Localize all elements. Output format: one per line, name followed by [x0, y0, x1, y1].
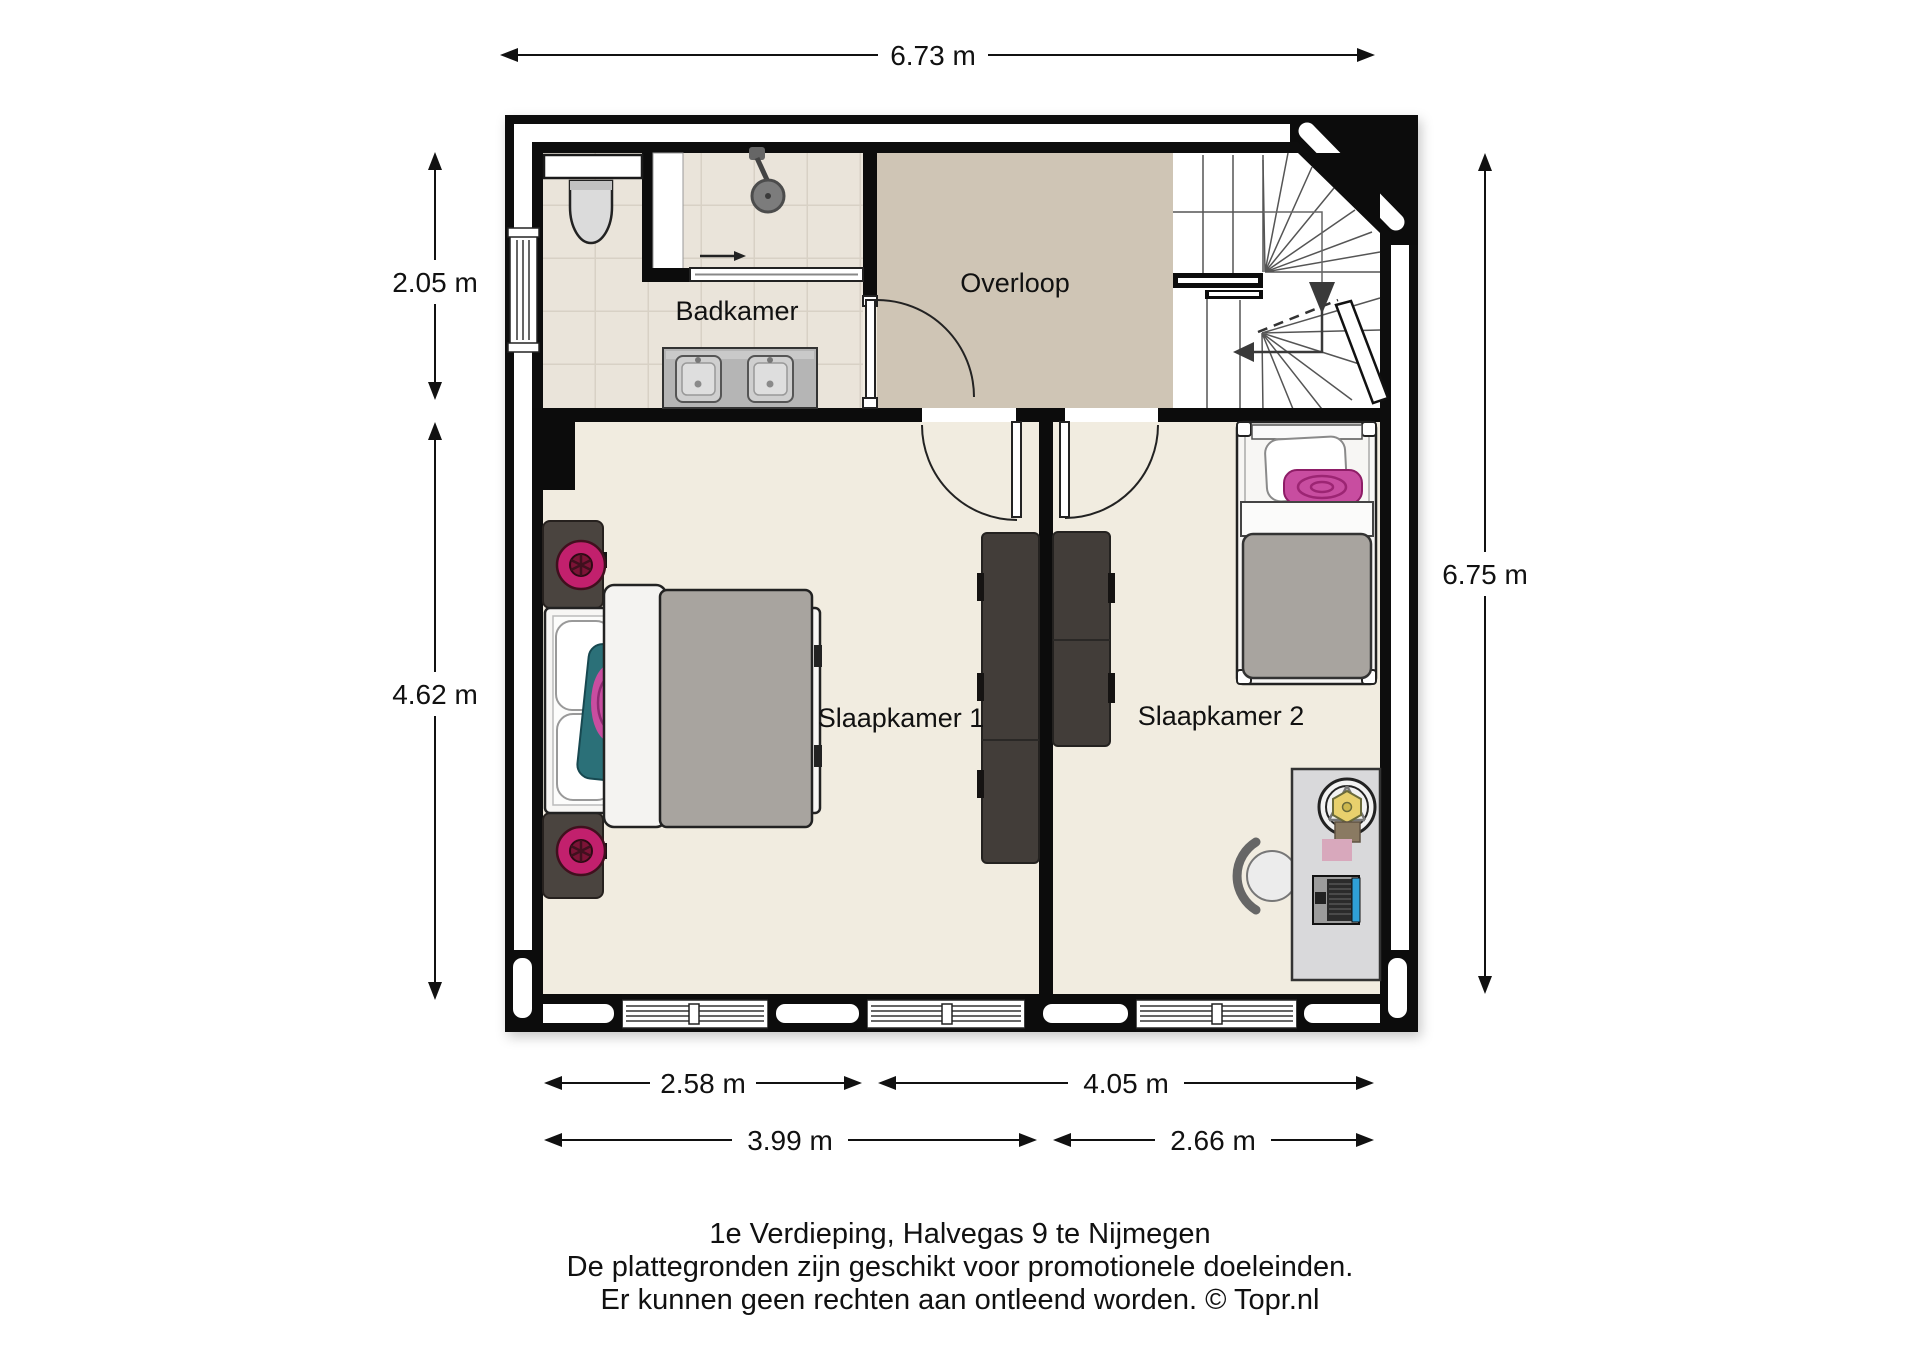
dim-right-label: 6.75 m — [1442, 559, 1528, 590]
table-lamp-bottom-icon — [557, 827, 605, 875]
dim-landing-width-label: 4.05 m — [1083, 1068, 1169, 1099]
caption-block: 1e Verdieping, Halvegas 9 te Nijmegen De… — [567, 1218, 1354, 1316]
dim-bottom-row1-right: 4.05 m — [878, 1068, 1374, 1099]
bedroom1-corner-pier — [532, 408, 575, 490]
toilet-icon — [570, 181, 612, 243]
window-bedroom2-south — [1136, 1000, 1307, 1028]
window-bathroom-west — [508, 228, 539, 352]
toilet-cistern — [544, 155, 642, 178]
dim-left-lower-label: 4.62 m — [392, 679, 478, 710]
toilet-partition-wall — [642, 153, 653, 270]
caption-line-3: Er kunnen geen rechten aan ontleend word… — [601, 1284, 1320, 1316]
single-bed — [1237, 422, 1376, 684]
dim-left-lower: 4.62 m — [392, 422, 478, 1000]
wardrobe2-handle-2 — [1108, 673, 1115, 703]
vanity-double-sink — [663, 348, 817, 408]
single-bed-rose-pillow — [1284, 470, 1362, 504]
landing-label: Overloop — [960, 268, 1070, 298]
bedroom2-label: Slaapkamer 2 — [1138, 701, 1305, 731]
dim-bathroom-width-label: 2.58 m — [660, 1068, 746, 1099]
single-bed-headboard — [1252, 425, 1362, 439]
bed-foot-fitting-1 — [814, 645, 822, 667]
bedroom1-label: Slaapkamer 1 — [818, 703, 985, 733]
bed-foot-fitting-2 — [814, 745, 822, 767]
shower-entry-gap — [653, 153, 683, 270]
table-lamp-top-icon — [557, 541, 605, 589]
bathroom-label: Badkamer — [675, 296, 798, 326]
double-bed — [545, 585, 822, 827]
dim-right: 6.75 m — [1442, 153, 1528, 994]
gray-duvet — [660, 590, 812, 827]
dim-bottom-row2-left: 3.99 m — [544, 1125, 1037, 1156]
dim-left-upper-label: 2.05 m — [392, 267, 478, 298]
single-bed-blanket — [1243, 534, 1371, 678]
laptop-icon — [1313, 876, 1360, 924]
stair-stub-wall-1-core — [1178, 278, 1258, 283]
door-gap-bedroom1 — [922, 408, 1016, 422]
window-bedroom1-south-a — [612, 1000, 768, 1028]
notepad — [1322, 839, 1352, 861]
dim-top: 6.73 m — [500, 40, 1375, 71]
window-bedroom1-south-b — [867, 1000, 1035, 1028]
wardrobe1-handle-3 — [977, 770, 984, 798]
door-gap-bedroom2 — [1065, 408, 1158, 422]
dim-left-upper: 2.05 m — [392, 152, 478, 400]
bathroom-south-wall — [532, 408, 877, 422]
bedroom-divider-wall — [1039, 408, 1053, 994]
single-bed-sheet-fold — [1241, 502, 1373, 536]
dim-bottom-row2-right: 2.66 m — [1053, 1125, 1374, 1156]
caption-line-2: De plattegronden zijn geschikt voor prom… — [567, 1251, 1354, 1283]
dim-bedroom1-width-label: 3.99 m — [747, 1125, 833, 1156]
floorplan-page: Badkamer Overloop Slaapkamer 1 Slaapkame… — [0, 0, 1920, 1358]
wardrobe1-handle-2 — [977, 673, 984, 701]
dim-top-label: 6.73 m — [890, 40, 976, 71]
dim-bottom-row1-left: 2.58 m — [544, 1068, 862, 1099]
floorplan: Badkamer Overloop Slaapkamer 1 Slaapkame… — [0, 0, 1920, 1358]
dim-bedroom2-width-label: 2.66 m — [1170, 1125, 1256, 1156]
wardrobe-bedroom1 — [982, 533, 1039, 863]
wardrobe2-handle-1 — [1108, 573, 1115, 603]
stair-stub-wall-2-core — [1209, 292, 1259, 296]
bathroom-east-wall — [863, 153, 877, 300]
folded-sheet — [604, 585, 666, 827]
wardrobe1-handle-1 — [977, 573, 984, 601]
caption-line-1: 1e Verdieping, Halvegas 9 te Nijmegen — [709, 1218, 1210, 1250]
